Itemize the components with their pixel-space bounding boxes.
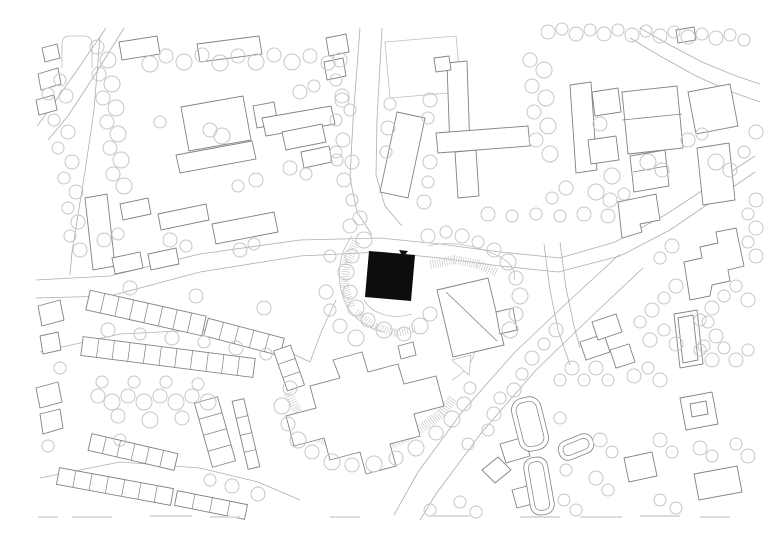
tree — [333, 319, 347, 333]
tree — [540, 118, 556, 134]
tree — [189, 289, 203, 303]
tree — [536, 62, 552, 78]
tree — [509, 271, 523, 285]
tree — [654, 252, 666, 264]
tree — [454, 496, 466, 508]
slope-hatch-tick — [469, 258, 471, 267]
tree — [421, 229, 435, 243]
tree — [589, 361, 603, 375]
tree — [627, 369, 641, 383]
tree — [696, 28, 708, 40]
path-outline — [62, 36, 92, 68]
track-area — [522, 455, 556, 516]
tree — [554, 374, 566, 386]
tree — [554, 210, 566, 222]
tree — [353, 211, 367, 225]
slope-hatch-tick — [449, 396, 457, 402]
tree — [423, 307, 437, 321]
tree — [670, 502, 682, 514]
building-footprint — [212, 212, 278, 244]
tree — [529, 133, 543, 147]
slope-hatch-tick — [342, 267, 351, 268]
tree — [742, 236, 754, 248]
slope-hatch-tick — [432, 260, 434, 269]
slope-hatch-tick — [434, 412, 440, 420]
track-area — [556, 431, 597, 463]
tree — [653, 433, 667, 447]
building-footprint — [36, 382, 62, 408]
tree — [559, 181, 573, 195]
tree — [738, 34, 750, 46]
tree — [742, 208, 754, 220]
tree — [204, 474, 216, 486]
tree — [284, 54, 300, 70]
slope-hatch-tick — [439, 258, 441, 267]
slope-hatch-tick — [425, 419, 431, 427]
tree — [606, 446, 618, 458]
tree — [658, 292, 670, 304]
tree — [709, 31, 723, 45]
tree — [658, 324, 670, 336]
slope-hatch-tick — [404, 327, 406, 335]
slope-hatch-tick — [444, 402, 452, 408]
slope-hatch-tick — [433, 414, 439, 422]
building-footprint — [630, 150, 669, 192]
tree — [681, 133, 695, 147]
tree — [729, 353, 743, 367]
slope-hatch-tick — [448, 256, 450, 265]
tree — [335, 93, 349, 107]
slope-hatch-tick — [431, 415, 437, 423]
slope-hatch-tick — [429, 416, 435, 424]
tree — [54, 362, 66, 374]
building-footprint — [624, 452, 657, 482]
tree — [160, 376, 172, 388]
track-outer — [556, 431, 597, 463]
tree — [464, 382, 476, 394]
tree — [134, 328, 146, 340]
slope-hatch-tick — [341, 281, 350, 282]
tree — [538, 338, 550, 350]
tree — [693, 441, 707, 455]
tree — [274, 398, 290, 414]
building-footprint — [694, 466, 742, 500]
tree — [249, 173, 263, 187]
tree — [96, 376, 108, 388]
slope-hatch-tick — [420, 423, 426, 431]
tree — [604, 168, 620, 184]
building-footprint — [38, 300, 64, 326]
tree — [530, 208, 542, 220]
tree — [324, 250, 336, 262]
tree — [128, 376, 140, 388]
tree — [225, 479, 239, 493]
tree — [730, 438, 742, 450]
paved-lot — [452, 355, 471, 375]
tree — [481, 207, 495, 221]
tree — [163, 233, 177, 247]
tree — [251, 487, 265, 501]
tree — [706, 450, 718, 462]
tree — [597, 27, 611, 41]
tree — [106, 167, 120, 181]
tree — [345, 458, 359, 472]
tree — [346, 194, 358, 206]
tree — [110, 126, 126, 142]
tree — [232, 180, 244, 192]
slope-hatch-tick — [471, 259, 473, 268]
tree — [308, 80, 320, 92]
slope-hatch-tick — [474, 259, 476, 268]
tree — [73, 243, 87, 257]
slope-hatch-tick — [341, 269, 350, 270]
tree — [113, 152, 129, 168]
tree — [335, 89, 349, 103]
tree — [618, 188, 630, 200]
slope-hatch-tick — [402, 328, 404, 336]
building-footprint — [36, 95, 57, 115]
tree — [153, 389, 167, 403]
tree — [356, 232, 372, 248]
tree — [444, 411, 460, 427]
tree — [248, 238, 260, 250]
building-footprint — [610, 344, 635, 368]
main-building-footprint — [365, 251, 415, 301]
building-footprint — [588, 136, 619, 164]
tree — [384, 98, 396, 110]
tree — [603, 193, 617, 207]
slope-hatch-tick — [341, 274, 350, 275]
tree — [527, 105, 541, 119]
slope-hatch-tick — [436, 411, 442, 419]
tree — [569, 27, 583, 41]
tree — [654, 494, 666, 506]
tree — [423, 155, 437, 169]
tree — [653, 29, 667, 43]
tree — [58, 172, 70, 184]
slope-hatch-tick — [427, 418, 433, 426]
road — [640, 28, 760, 84]
building-footprint — [85, 194, 115, 270]
tree — [749, 249, 763, 263]
tree — [283, 161, 297, 175]
slope-hatch-tick — [384, 326, 386, 334]
tree — [462, 438, 474, 450]
tree — [487, 243, 501, 257]
tree — [702, 316, 714, 328]
tree — [69, 185, 83, 199]
track-outer — [522, 455, 556, 516]
building-footprint — [380, 112, 425, 198]
tree — [361, 313, 375, 327]
tree — [121, 389, 135, 403]
tree — [512, 288, 528, 304]
tree — [111, 409, 125, 423]
tree — [455, 229, 469, 243]
building-footprint — [684, 228, 744, 300]
slope-hatch-tick — [430, 260, 432, 269]
tree — [176, 54, 192, 70]
tree — [116, 178, 132, 194]
tree — [257, 301, 271, 315]
tree — [494, 392, 506, 404]
tree — [123, 281, 137, 295]
tree — [709, 329, 723, 343]
row-housing-layer — [56, 290, 304, 519]
road — [310, 300, 336, 362]
tree — [337, 173, 351, 187]
tree — [422, 176, 434, 188]
building-footprint — [197, 36, 262, 62]
tree — [293, 85, 307, 99]
tree — [718, 342, 730, 354]
building-footprint — [38, 68, 61, 90]
tree — [588, 184, 604, 200]
tree — [705, 353, 719, 367]
tree — [577, 207, 591, 221]
tree — [198, 336, 210, 348]
slope-hatch-tick — [437, 259, 439, 268]
tree — [305, 445, 319, 459]
tree — [175, 411, 189, 425]
tree — [525, 79, 539, 93]
tree — [345, 155, 359, 169]
tree — [749, 125, 763, 139]
slope-hatch-tick — [422, 422, 428, 430]
slope-hatch-tick — [341, 287, 350, 290]
tree — [348, 330, 364, 346]
tree — [593, 117, 607, 131]
tree — [506, 210, 518, 222]
tree — [470, 506, 482, 518]
building-footprint — [592, 314, 622, 340]
tree — [643, 333, 657, 347]
tree — [142, 56, 158, 72]
building-footprint — [120, 198, 151, 220]
tree — [91, 389, 105, 403]
tree — [165, 331, 179, 345]
building-footprint — [398, 342, 416, 359]
tree — [602, 374, 614, 386]
road — [350, 28, 372, 235]
tree — [303, 49, 317, 63]
slope-hatch-tick — [292, 407, 301, 412]
tree — [48, 114, 60, 126]
tree — [168, 394, 184, 410]
tree — [730, 280, 742, 292]
tree — [665, 239, 679, 253]
tree — [267, 48, 281, 62]
tree — [233, 243, 247, 257]
tree — [738, 146, 750, 158]
tree — [570, 504, 582, 516]
tree — [565, 361, 579, 375]
slope-hatch-tick — [341, 276, 350, 277]
building-footprint — [158, 204, 209, 230]
tree — [634, 316, 646, 328]
tree — [408, 440, 424, 456]
tree — [538, 90, 554, 106]
building-footprint — [455, 150, 479, 198]
tree — [724, 29, 736, 41]
building-footprint — [618, 194, 660, 238]
terraced-row — [274, 345, 305, 391]
tree — [741, 293, 755, 307]
tree — [578, 374, 590, 386]
slope-hatch-tick — [435, 259, 437, 268]
tree — [560, 464, 572, 476]
site-plan-page — [0, 0, 780, 552]
tree — [542, 146, 558, 162]
tree — [602, 484, 614, 496]
slope-hatch-tick — [423, 420, 429, 428]
tree — [749, 193, 763, 207]
building-footprint — [697, 143, 735, 205]
tree — [423, 93, 437, 107]
tree — [705, 301, 719, 315]
tree — [612, 24, 624, 36]
tree — [248, 54, 264, 70]
tree — [42, 440, 54, 452]
slope-hatch-tick — [341, 271, 350, 272]
tree — [300, 168, 312, 180]
tree — [412, 318, 428, 334]
building-footprint — [286, 352, 444, 474]
building-footprint — [622, 86, 683, 154]
slope-hatch-tick — [446, 400, 454, 406]
tree — [546, 192, 558, 204]
tree — [625, 28, 639, 42]
tree — [397, 327, 411, 341]
tree — [101, 323, 115, 337]
tree — [62, 202, 74, 214]
tree — [589, 471, 603, 485]
building-footprint — [40, 332, 61, 354]
tree — [96, 91, 110, 105]
road — [544, 244, 570, 365]
tree — [142, 412, 158, 428]
tree — [741, 449, 755, 463]
tree — [669, 279, 683, 293]
building-footprint — [434, 56, 451, 72]
tree — [154, 116, 166, 128]
slope-hatch-tick — [447, 398, 455, 404]
tree — [558, 494, 570, 506]
slope-hatch-tick — [441, 258, 443, 267]
tree — [487, 407, 501, 421]
tree — [525, 351, 539, 365]
tree — [556, 23, 568, 35]
tree — [642, 362, 654, 374]
tree — [59, 89, 73, 103]
tree — [159, 49, 173, 63]
tree — [136, 394, 152, 410]
tree — [472, 236, 484, 248]
tree — [523, 53, 537, 67]
tree — [331, 154, 343, 166]
tree — [749, 221, 763, 235]
tree — [381, 121, 395, 135]
building-footprint — [592, 88, 621, 116]
tree — [112, 228, 124, 240]
terraced-row — [56, 468, 173, 506]
building-footprint — [148, 248, 179, 270]
building-footprint — [119, 36, 160, 60]
tree — [593, 433, 607, 447]
slope-hatch-tick — [340, 283, 349, 284]
tree — [549, 323, 563, 337]
tree — [180, 240, 192, 252]
tree — [718, 290, 730, 302]
tree — [541, 25, 555, 39]
tree — [319, 285, 333, 299]
tree — [516, 368, 528, 380]
building-footprint — [42, 44, 60, 62]
building-footprint — [437, 278, 504, 357]
tree — [645, 303, 659, 317]
tree — [440, 226, 452, 238]
tree — [336, 133, 350, 147]
building-footprint — [688, 84, 738, 134]
tree — [417, 195, 431, 209]
tree — [185, 389, 199, 403]
tree — [324, 304, 336, 316]
tree — [584, 24, 596, 36]
project-site-layer — [365, 250, 415, 301]
tree — [666, 446, 678, 458]
tree — [554, 412, 566, 424]
slope-hatch-tick — [446, 257, 448, 266]
tree — [108, 100, 124, 116]
tree — [601, 209, 615, 223]
faint-marks-layer — [38, 516, 730, 517]
tree — [61, 125, 75, 139]
tree — [742, 344, 754, 356]
slope-hatch-tick — [450, 256, 452, 265]
tree — [343, 219, 357, 233]
tree — [103, 141, 117, 155]
tree — [653, 373, 667, 387]
building-footprint — [301, 146, 332, 168]
tree — [192, 378, 204, 390]
building-footprint — [112, 252, 143, 274]
building-footprint — [326, 34, 349, 56]
tree — [429, 426, 443, 440]
slope-hatch-tick — [386, 327, 388, 335]
building-footprint — [40, 409, 63, 434]
building-footprint — [690, 401, 708, 417]
tree — [52, 142, 64, 154]
terraced-row — [204, 318, 285, 355]
site-plan-drawing — [0, 0, 780, 552]
tree — [65, 155, 79, 169]
tree — [104, 76, 120, 92]
tree — [104, 394, 120, 410]
tree — [100, 115, 114, 129]
